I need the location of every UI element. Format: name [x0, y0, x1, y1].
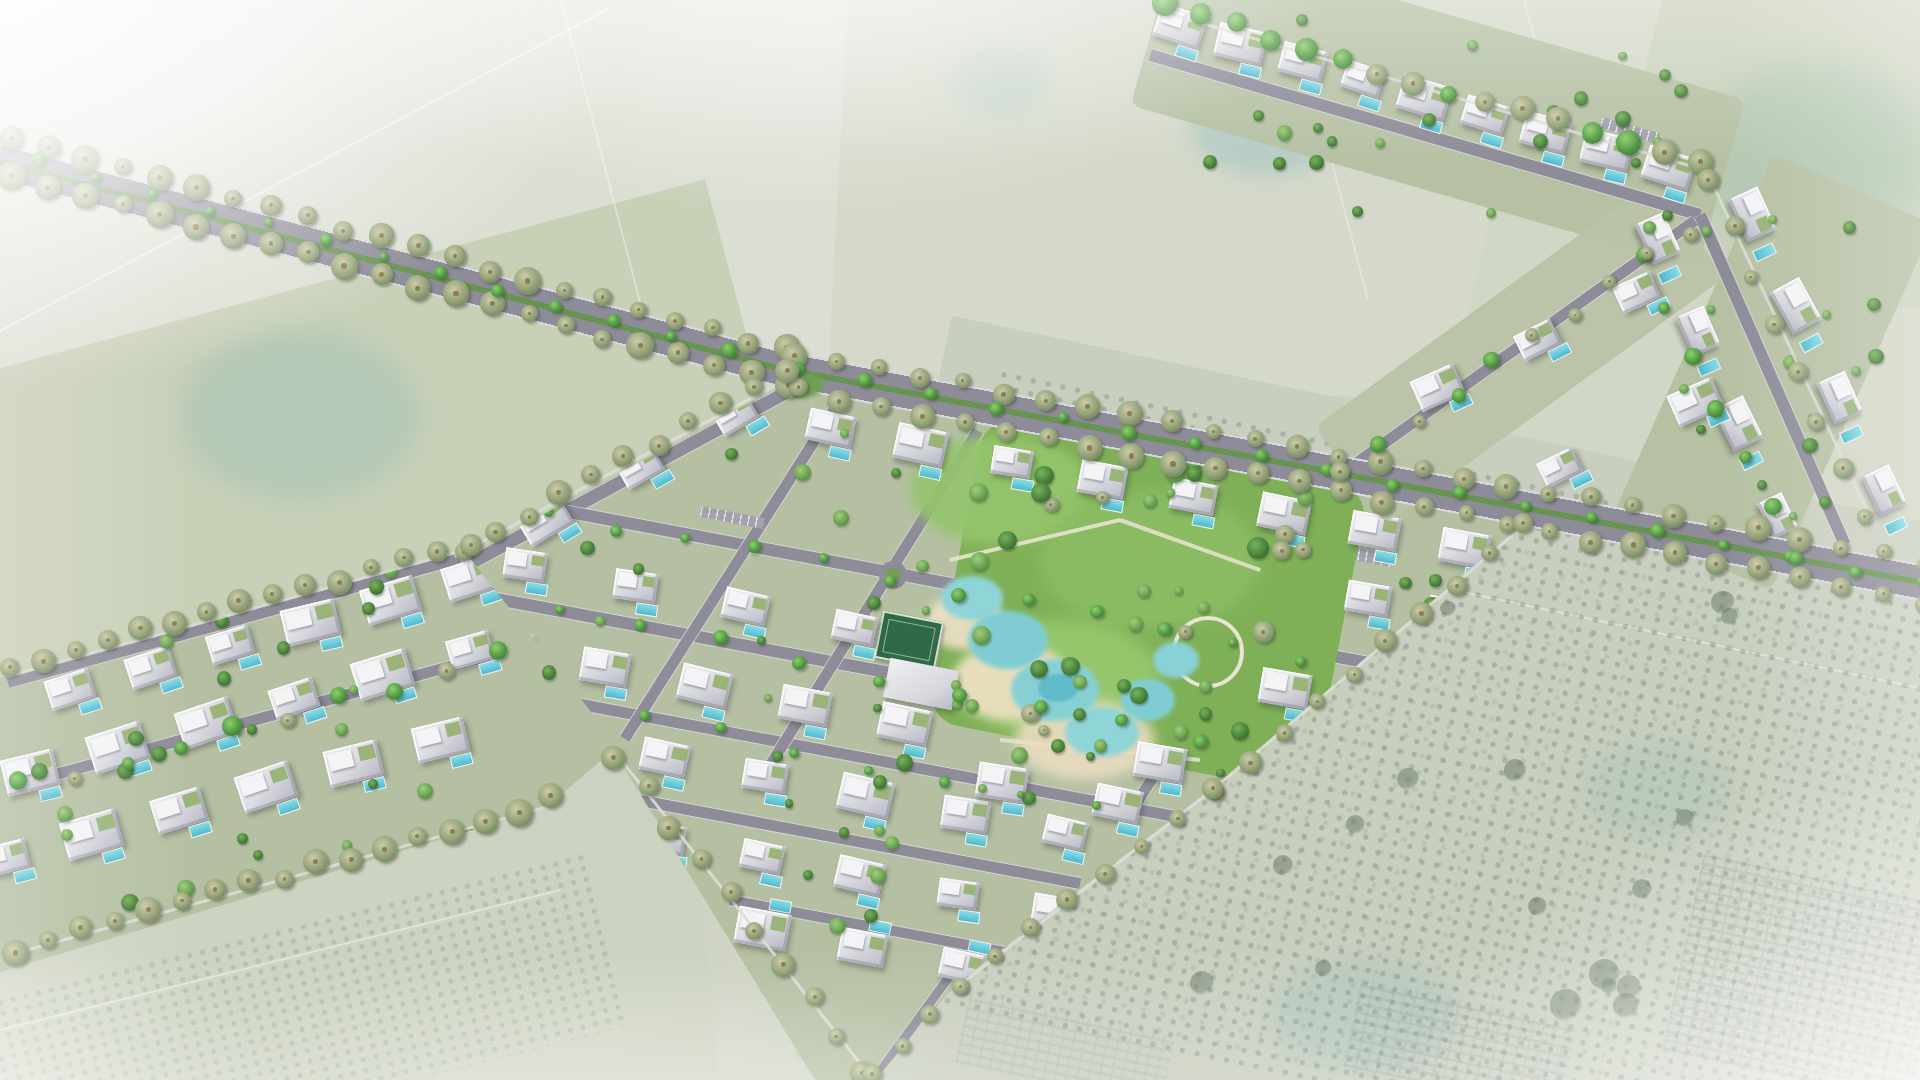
- villa-pool: [745, 415, 770, 436]
- garden-trees: [1327, 136, 1337, 146]
- garden-trees: [1674, 84, 1688, 98]
- garden-trees: [829, 918, 846, 935]
- villa: [638, 736, 691, 778]
- palm-tree: [205, 206, 215, 216]
- palm-tree: [873, 676, 884, 687]
- garden-trees: [785, 799, 794, 808]
- garden-trees: [1659, 69, 1671, 81]
- park-trees: [1094, 739, 1107, 752]
- palm-tree: [951, 588, 966, 603]
- palm-tree: [1202, 778, 1223, 799]
- villa: [831, 609, 879, 647]
- palm-tree: [1707, 400, 1725, 418]
- palm-tree: [1833, 458, 1854, 479]
- palm-tree: [197, 602, 216, 621]
- garden-trees: [335, 723, 348, 736]
- park-trees: [1178, 625, 1192, 639]
- garden-trees: [1429, 574, 1441, 586]
- palm-tree: [612, 445, 633, 466]
- palm-tree: [280, 713, 296, 729]
- palm-tree: [1255, 449, 1268, 462]
- palm-tree: [1831, 577, 1851, 597]
- palm-tree: [183, 174, 210, 201]
- villa-pool: [238, 653, 263, 671]
- palm-tree: [1077, 435, 1102, 460]
- palm-tree: [1295, 656, 1306, 667]
- garden-trees: [349, 685, 358, 694]
- villa-pool: [524, 581, 548, 596]
- villa-pool: [319, 636, 343, 653]
- villa: [1041, 814, 1089, 852]
- park-trees: [1031, 483, 1051, 503]
- palm-tree: [1624, 497, 1641, 514]
- garden-trees: [922, 606, 930, 614]
- palm-tree: [275, 870, 294, 889]
- villa: [410, 716, 470, 763]
- villa-pool: [449, 752, 473, 769]
- lagoon-deep: [1038, 674, 1078, 702]
- palm-tree: [320, 233, 332, 245]
- palm-tree: [1744, 270, 1758, 284]
- palm-tree: [1247, 462, 1269, 484]
- palm-tree: [339, 848, 363, 872]
- garden-trees: [1679, 384, 1689, 394]
- palm-tree: [1857, 509, 1872, 524]
- palm-tree: [1169, 810, 1186, 827]
- garden-trees: [595, 616, 604, 625]
- palm-tree: [1295, 38, 1318, 61]
- villa-pool: [217, 734, 242, 752]
- garden-trees: [833, 510, 849, 526]
- park-trees: [1295, 542, 1311, 558]
- garden-trees: [61, 829, 73, 841]
- palm-tree: [703, 355, 725, 377]
- palm-tree: [298, 206, 317, 225]
- garden-trees: [873, 704, 882, 713]
- palm-tree: [260, 195, 282, 217]
- palm-tree: [439, 819, 465, 845]
- palm-tree: [692, 849, 712, 869]
- palm-tree: [227, 589, 251, 613]
- palm-tree: [520, 508, 539, 527]
- villa: [739, 838, 787, 876]
- park-trees: [1231, 722, 1248, 739]
- villa-pool: [964, 832, 988, 847]
- villa-pool: [702, 705, 726, 722]
- palm-tree: [1121, 425, 1137, 441]
- palm-tree: [259, 232, 283, 256]
- garden-trees: [1273, 157, 1285, 169]
- palm-tree: [1401, 72, 1425, 96]
- palm-tree: [1160, 451, 1186, 477]
- palm-tree: [1616, 130, 1641, 155]
- palm-tree: [1134, 839, 1149, 854]
- palm-tree: [939, 776, 951, 788]
- garden-trees: [237, 833, 248, 844]
- garden-trees: [867, 596, 881, 610]
- palm-tree: [1161, 410, 1182, 431]
- palm-tree: [72, 183, 98, 209]
- villa: [1344, 579, 1393, 617]
- palm-tree: [1459, 505, 1474, 520]
- garden-trees: [1030, 660, 1048, 678]
- orchard-clumps: [1711, 591, 1734, 614]
- palm-tree: [489, 641, 507, 659]
- villa-pool: [853, 644, 877, 660]
- palm-tree: [1346, 667, 1362, 683]
- garden-trees: [1166, 488, 1175, 497]
- palm-tree: [952, 688, 967, 703]
- palm-tree: [639, 710, 650, 721]
- palm-tree: [1481, 545, 1498, 562]
- palm-tree: [792, 656, 806, 670]
- garden-trees: [1117, 679, 1131, 693]
- palm-tree: [1118, 443, 1144, 469]
- aerial-masterplan-render: [0, 0, 1920, 1080]
- orchard-clumps: [1346, 815, 1365, 834]
- garden-trees: [369, 579, 384, 594]
- palm-tree: [369, 223, 393, 247]
- palm-tree: [952, 978, 968, 994]
- palm-tree: [1056, 889, 1077, 910]
- palm-tree: [1652, 139, 1678, 165]
- palm-tree: [715, 722, 726, 733]
- villa: [936, 877, 979, 910]
- palm-tree: [1189, 437, 1201, 449]
- park-trees: [1034, 466, 1054, 486]
- villa-pool: [558, 522, 583, 544]
- villa-pool: [303, 707, 328, 725]
- villa: [676, 662, 734, 709]
- palm-tree: [924, 387, 937, 400]
- palm-tree: [1368, 449, 1394, 475]
- palm-tree: [666, 331, 676, 341]
- palm-tree: [1021, 918, 1040, 937]
- palm-tree: [1440, 86, 1457, 103]
- palm-tree: [224, 190, 242, 208]
- palm-tree: [408, 827, 427, 846]
- palm-tree: [649, 435, 670, 456]
- villa: [876, 701, 933, 746]
- villa-pool: [768, 898, 792, 914]
- palm-tree: [910, 404, 935, 429]
- palm-tree: [135, 897, 161, 923]
- palm-tree: [0, 126, 24, 150]
- palm-tree: [1453, 486, 1466, 499]
- palm-tree: [1386, 479, 1399, 492]
- palm-tree: [98, 630, 118, 650]
- orchard-clumps: [1589, 959, 1620, 990]
- villa: [777, 683, 833, 726]
- garden-trees: [870, 868, 886, 884]
- palm-tree: [748, 540, 761, 553]
- palm-tree: [263, 584, 282, 603]
- palm-tree: [1875, 586, 1891, 602]
- palm-tree: [1494, 474, 1519, 499]
- palm-tree: [331, 253, 358, 280]
- palm-tree: [1849, 566, 1861, 578]
- palm-tree: [666, 312, 684, 330]
- garden-trees: [1309, 155, 1323, 169]
- orchard-clumps: [1550, 989, 1581, 1020]
- garden-trees: [1618, 52, 1626, 60]
- palm-tree: [1204, 457, 1227, 480]
- palm-tree: [90, 172, 100, 182]
- palm-tree: [1370, 491, 1394, 515]
- park-trees: [1187, 466, 1203, 482]
- palm-tree: [775, 359, 799, 383]
- field-stain: [950, 45, 1050, 115]
- palm-tree: [626, 332, 654, 360]
- palm-tree: [601, 746, 625, 770]
- palm-tree: [505, 799, 533, 827]
- palm-tree: [204, 879, 226, 901]
- parking: [700, 505, 765, 528]
- palm-tree: [1286, 435, 1309, 458]
- palm-tree: [1483, 352, 1500, 369]
- garden-trees: [57, 806, 73, 822]
- palm-tree: [1414, 460, 1431, 477]
- garden-trees: [1467, 40, 1478, 51]
- palm-tree: [31, 152, 46, 167]
- palm-tree: [657, 816, 680, 839]
- palm-tree: [1683, 227, 1698, 242]
- villa-pool: [39, 784, 63, 801]
- palm-tree: [67, 641, 85, 659]
- palm-tree: [789, 748, 799, 758]
- palm-tree: [333, 221, 353, 241]
- garden-trees: [965, 699, 979, 713]
- garden-trees: [1486, 208, 1496, 218]
- palm-tree: [114, 158, 131, 175]
- villa-pool: [1062, 849, 1086, 866]
- palm-tree: [1288, 469, 1311, 492]
- garden-trees: [874, 825, 885, 836]
- park-trees: [1199, 680, 1212, 693]
- palm-tree: [1697, 169, 1719, 191]
- palm-tree: [473, 809, 497, 833]
- orchard-clumps: [1617, 975, 1641, 999]
- villa-pool: [764, 793, 788, 808]
- villa: [836, 927, 888, 968]
- palm-tree: [1541, 523, 1558, 540]
- palm-tree: [1640, 246, 1653, 259]
- palm-tree: [607, 314, 620, 327]
- garden-trees: [128, 731, 144, 747]
- palm-tree: [872, 397, 890, 415]
- palm-tree: [485, 522, 506, 543]
- palm-tree: [1206, 424, 1221, 439]
- orchard-clumps: [1528, 897, 1547, 916]
- palm-tree: [491, 284, 504, 297]
- park-trees: [1143, 494, 1157, 508]
- palm-tree: [546, 480, 571, 505]
- palm-tree: [679, 412, 697, 430]
- garden-trees: [1199, 707, 1212, 720]
- villa-pool: [159, 676, 184, 694]
- palm-tree: [721, 342, 736, 357]
- villa-pool: [760, 873, 784, 889]
- villa: [741, 757, 789, 794]
- garden-trees: [543, 817, 553, 827]
- palm-tree: [862, 1064, 882, 1080]
- garden-trees: [580, 541, 594, 555]
- palm-tree: [1330, 479, 1351, 500]
- palm-tree: [1117, 401, 1142, 426]
- palm-tree: [955, 373, 971, 389]
- villa-pool: [79, 698, 104, 716]
- palm-tree: [1620, 532, 1646, 558]
- villa: [892, 422, 950, 468]
- garden-trees: [253, 850, 263, 860]
- palm-tree: [31, 649, 55, 673]
- palm-tree: [106, 912, 124, 930]
- orchard-clumps: [1504, 759, 1526, 781]
- garden-trees: [1802, 438, 1817, 453]
- field-stain: [180, 330, 420, 500]
- palm-tree: [122, 757, 135, 770]
- palm-tree: [1190, 3, 1211, 24]
- park-trees: [998, 531, 1017, 550]
- palm-tree: [1034, 700, 1048, 714]
- palm-tree: [1370, 436, 1386, 452]
- palm-tree: [1095, 864, 1116, 885]
- palm-tree: [1090, 605, 1103, 618]
- villa-pool: [400, 611, 425, 629]
- palm-tree: [1227, 12, 1247, 32]
- palm-tree: [1510, 96, 1535, 121]
- villa-pool: [1116, 822, 1140, 838]
- palm-tree: [379, 252, 388, 261]
- palm-tree: [1157, 622, 1171, 636]
- palm-tree: [737, 333, 759, 355]
- palm-tree: [1330, 462, 1350, 482]
- palm-tree: [1260, 30, 1281, 51]
- palm-tree: [610, 525, 622, 537]
- palm-tree: [1876, 544, 1892, 560]
- garden-trees: [277, 641, 290, 654]
- garden-trees: [1574, 91, 1589, 106]
- palm-tree: [147, 165, 173, 191]
- palm-tree: [771, 953, 795, 977]
- palm-tree: [438, 662, 455, 679]
- garden-trees: [1422, 113, 1436, 127]
- orchard-clumps: [1676, 809, 1694, 827]
- villa-pool: [827, 446, 851, 462]
- garden-trees: [1253, 110, 1263, 120]
- palm-tree: [1745, 515, 1770, 540]
- garden-trees: [725, 448, 737, 460]
- palm-tree: [427, 541, 448, 562]
- villa-pool: [1001, 801, 1025, 816]
- palm-tree: [1366, 64, 1387, 85]
- garden-trees: [1631, 158, 1641, 168]
- garden-trees: [1819, 496, 1831, 508]
- garden-trees: [1867, 298, 1881, 312]
- villa: [234, 760, 299, 814]
- palm-tree: [1276, 724, 1293, 741]
- villa: [578, 646, 631, 687]
- garden-trees: [1128, 616, 1144, 632]
- garden-trees: [368, 779, 378, 789]
- palm-tree: [1718, 540, 1729, 551]
- garden-trees: [1768, 215, 1777, 224]
- garden-trees: [1022, 791, 1036, 805]
- garden-trees: [885, 836, 899, 850]
- villa: [349, 648, 415, 702]
- villa-pool: [102, 847, 126, 865]
- park-trees: [972, 626, 991, 645]
- villa-pool: [857, 893, 881, 910]
- palm-tree: [1788, 362, 1808, 382]
- palm-tree: [444, 245, 466, 267]
- palm-tree: [35, 175, 60, 200]
- garden-trees: [891, 468, 901, 478]
- garden-trees: [151, 746, 167, 762]
- palm-tree: [1022, 593, 1036, 607]
- render-scene: [0, 0, 1920, 1080]
- palm-tree: [1115, 714, 1127, 726]
- palm-tree: [745, 922, 763, 940]
- palm-tree: [680, 533, 690, 543]
- garden-trees: [1662, 210, 1673, 221]
- villa-pool: [478, 658, 502, 676]
- garden-trees: [1868, 349, 1884, 365]
- palm-tree: [0, 658, 19, 677]
- palm-tree: [709, 392, 732, 415]
- garden-trees: [159, 634, 174, 649]
- palm-tree: [1764, 498, 1781, 515]
- palm-tree: [956, 413, 974, 431]
- garden-trees: [1843, 221, 1856, 234]
- garden-trees: [1643, 221, 1655, 233]
- palm-tree: [1039, 428, 1058, 447]
- garden-trees: [839, 827, 849, 837]
- park-trees: [1038, 725, 1049, 736]
- palm-tree: [173, 892, 191, 910]
- villa: [720, 587, 770, 627]
- park-trees: [969, 483, 988, 502]
- villa-pool: [13, 867, 37, 884]
- garden-trees: [1173, 724, 1189, 740]
- palm-tree: [174, 741, 187, 754]
- palm-tree: [721, 882, 742, 903]
- palm-tree: [237, 869, 260, 892]
- palm-tree: [1602, 275, 1616, 289]
- villa: [1133, 741, 1188, 783]
- palm-tree: [1058, 412, 1068, 422]
- garden-trees: [1277, 125, 1292, 140]
- palm-tree: [1540, 486, 1556, 502]
- villa-pool: [634, 602, 658, 617]
- garden-trees: [1313, 123, 1323, 133]
- palm-tree: [667, 342, 689, 364]
- garden-trees: [247, 724, 258, 735]
- garden-trees: [547, 815, 557, 825]
- palm-tree: [1581, 487, 1601, 507]
- palm-tree: [1410, 602, 1433, 625]
- palm-tree: [2, 940, 28, 966]
- palm-tree: [162, 611, 187, 636]
- palm-tree: [1092, 801, 1101, 810]
- palm-tree: [1447, 576, 1468, 597]
- garden-trees: [1399, 577, 1412, 590]
- orchard-clumps: [1440, 601, 1456, 617]
- palm-tree: [593, 288, 611, 306]
- palm-tree: [630, 302, 647, 319]
- palm-tree: [827, 390, 850, 413]
- garden-trees: [417, 783, 433, 799]
